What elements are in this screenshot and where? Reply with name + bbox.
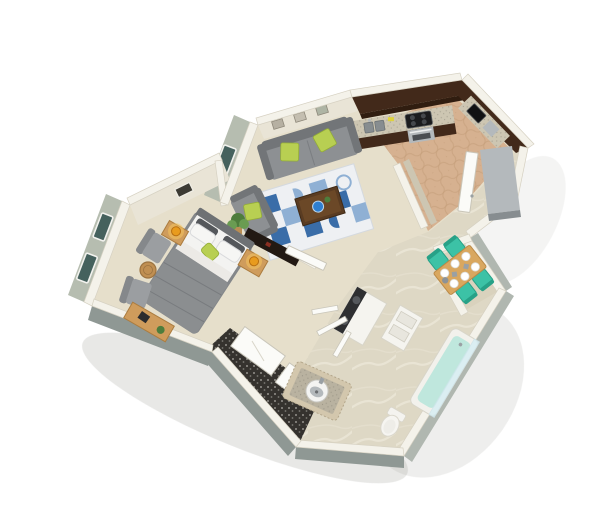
round-stool: [140, 262, 156, 278]
sofa-pillow-1: [281, 143, 299, 161]
loveseat-pillow: [243, 202, 262, 221]
floorplan-canvas: 3D isometric floor plan of a one-bedroom…: [0, 0, 600, 529]
plant-foliage-3: [239, 219, 249, 229]
sink-basin-1: [364, 122, 374, 133]
yellow-sponge: [388, 117, 394, 121]
sink-basin-2: [375, 120, 385, 131]
floorplan-rendering: 3D isometric floor plan of a one-bedroom…: [0, 0, 600, 529]
napkin-2: [463, 264, 469, 270]
napkin-1: [452, 271, 458, 277]
entry-door-knob: [470, 194, 473, 197]
